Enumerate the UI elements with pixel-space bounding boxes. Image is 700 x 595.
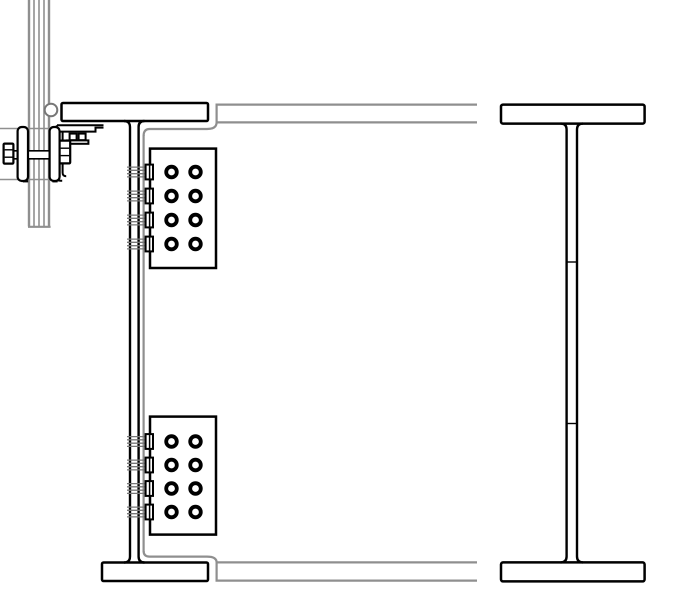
bolt-head: [166, 191, 177, 202]
seat-bolt-head: [79, 134, 86, 141]
left-beam-top-flange: [62, 103, 209, 121]
right-beam-bottom-flange: [501, 562, 645, 581]
pin-circle: [45, 104, 58, 117]
clamp-bolt-head: [4, 144, 14, 164]
girder-top-cope: [144, 122, 217, 136]
clamp-washer-right: [50, 127, 60, 181]
bolt-head: [190, 460, 201, 471]
upper-bolt-group: [127, 149, 216, 268]
bolt-head: [166, 215, 177, 226]
splice-plate: [150, 149, 216, 268]
bolt-head: [166, 507, 177, 518]
bolt-head: [190, 483, 201, 494]
beam-connection-detail-drawing: [0, 0, 700, 595]
bolt-head: [190, 239, 201, 250]
girder-bottom-flange: [217, 562, 477, 580]
bolt-head: [166, 483, 177, 494]
right-beam-top-flange: [501, 105, 645, 124]
splice-plate: [150, 417, 216, 535]
bolt-head: [166, 167, 177, 178]
bolt-head: [190, 507, 201, 518]
left-beam-web-near-line: [124, 121, 130, 563]
bolt-head: [190, 215, 201, 226]
lower-bolt-group: [127, 417, 216, 535]
left-beam-bottom-flange: [102, 563, 208, 582]
bolt-head: [166, 436, 177, 447]
bolt-head: [166, 239, 177, 250]
seat-step-line: [57, 128, 104, 132]
girder-top-flange: [217, 105, 477, 123]
right-beam-web-near-line: [561, 124, 567, 563]
bolt-head: [190, 191, 201, 202]
bolt-head: [166, 460, 177, 471]
pin-circle: [45, 104, 58, 117]
clamp-nut: [60, 141, 71, 164]
seat-bolt-head: [70, 134, 77, 141]
right-beam: [501, 105, 645, 582]
cad-drawing-canvas: [0, 0, 700, 595]
bolt-head: [190, 167, 201, 178]
girder-bottom-cope: [144, 551, 217, 562]
clamp-washer-left: [18, 127, 28, 181]
bolt-head: [190, 436, 201, 447]
right-beam-web-far-line: [577, 124, 583, 563]
